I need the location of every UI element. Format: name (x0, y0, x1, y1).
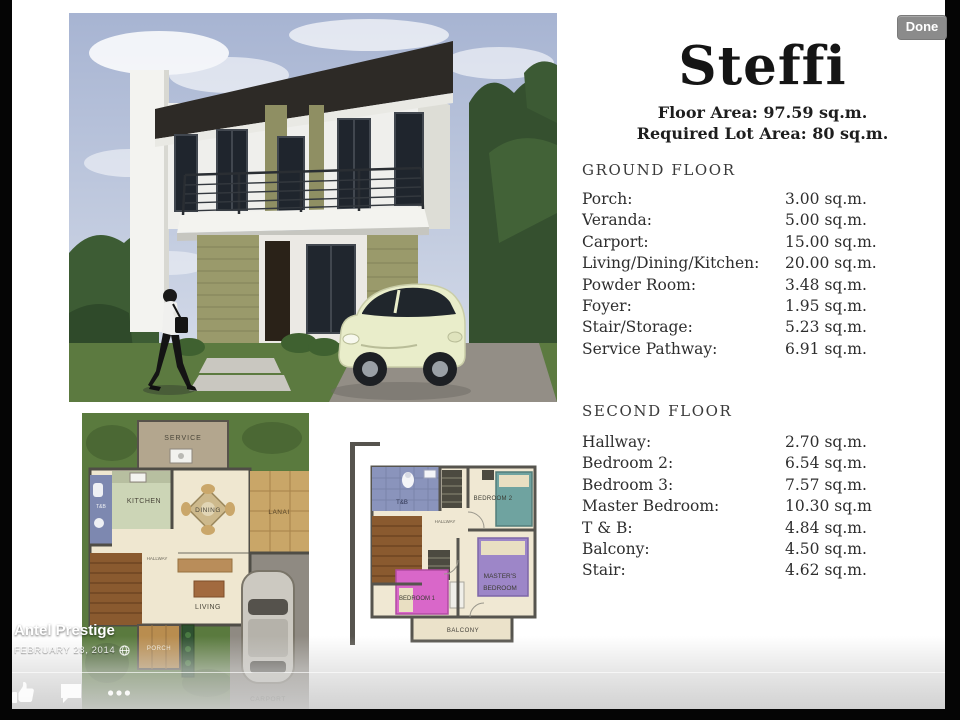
second-floor-plan-drawing: BALCONY T&B (350, 442, 540, 645)
second-floor-list: Hallway:2.70 sq.m. Bedroom 2:6.54 sq.m. … (582, 433, 922, 583)
model-title: Steffi (580, 38, 945, 94)
house-render-photo (69, 13, 557, 402)
author-name[interactable]: Antel Prestige (14, 622, 130, 639)
action-bar (10, 680, 132, 706)
dining-label: DINING (195, 507, 221, 514)
room-row: Service Pathway:6.91 sq.m. (582, 340, 922, 361)
masters-label-1: MASTER'S (484, 573, 517, 580)
lanai-label: LANAI (268, 509, 289, 516)
ground-tb-label: T&B (96, 504, 106, 510)
masters-label-2: BEDROOM (483, 585, 517, 592)
room-row: Living/Dining/Kitchen:20.00 sq.m. (582, 254, 922, 275)
room-row: Stair/Storage:5.23 sq.m. (582, 318, 922, 339)
room-row: Bedroom 3:7.57 sq.m. (582, 476, 922, 497)
ground-floor-list: Porch:3.00 sq.m. Veranda:5.00 sq.m. Carp… (582, 190, 922, 361)
comment-bubble-icon[interactable] (58, 680, 84, 706)
second-tb-label: T&B (396, 500, 408, 506)
like-thumbs-up-icon[interactable] (10, 680, 36, 706)
ground-floor-heading: GROUND FLOOR (582, 161, 736, 179)
kitchen-label: KITCHEN (127, 498, 161, 505)
bottom-gradient-overlay (12, 636, 945, 710)
room-row: Powder Room:3.48 sq.m. (582, 276, 922, 297)
room-row: Balcony:4.50 sq.m. (582, 540, 922, 561)
letterbox-bottom (0, 709, 960, 720)
second-floor-heading: SECOND FLOOR (582, 402, 732, 420)
photo-caption: Antel Prestige FEBRUARY 28, 2014 (14, 622, 130, 656)
bedroom2-label: BEDROOM 2 (474, 496, 513, 502)
ground-hallway-label: HALLWAY (147, 556, 168, 561)
photo-date: FEBRUARY 28, 2014 (14, 645, 115, 656)
room-row: Carport:15.00 sq.m. (582, 233, 922, 254)
letterbox-right (945, 0, 960, 720)
balcony-label: BALCONY (447, 628, 479, 634)
house-render-illustration (69, 13, 557, 402)
room-row: Master Bedroom:10.30 sq.m (582, 497, 922, 518)
service-label: SERVICE (164, 435, 202, 442)
second-hallway-label: HALLWAY (435, 519, 456, 524)
second-floor-plan: BALCONY T&B (350, 442, 540, 645)
service-area (138, 421, 228, 471)
globe-icon (119, 645, 130, 656)
lot-area-line: Required Lot Area: 80 sq.m. (580, 123, 945, 144)
room-row: Porch:3.00 sq.m. (582, 190, 922, 211)
front-door (265, 241, 290, 341)
left-wall-bar (350, 442, 355, 645)
letterbox-left (0, 0, 12, 720)
title-block: Steffi Floor Area: 97.59 sq.m. Required … (580, 38, 945, 144)
room-row: Stair:4.62 sq.m. (582, 561, 922, 582)
photo-viewer-screen: SERVICE T&B DINING KITCHEN (0, 0, 960, 720)
stairs-area (90, 553, 142, 625)
done-button[interactable]: Done (897, 15, 947, 40)
room-row: Foyer:1.95 sq.m. (582, 297, 922, 318)
room-row: Bedroom 2:6.54 sq.m. (582, 454, 922, 475)
room-row: T & B:4.84 sq.m. (582, 519, 922, 540)
floor-area-line: Floor Area: 97.59 sq.m. (580, 102, 945, 123)
living-label: LIVING (195, 604, 221, 611)
room-row: Veranda:5.00 sq.m. (582, 211, 922, 232)
bedroom1-label: BEDROOM 1 (399, 596, 436, 602)
room-row: Hallway:2.70 sq.m. (582, 433, 922, 454)
more-ellipsis-icon[interactable] (106, 680, 132, 706)
